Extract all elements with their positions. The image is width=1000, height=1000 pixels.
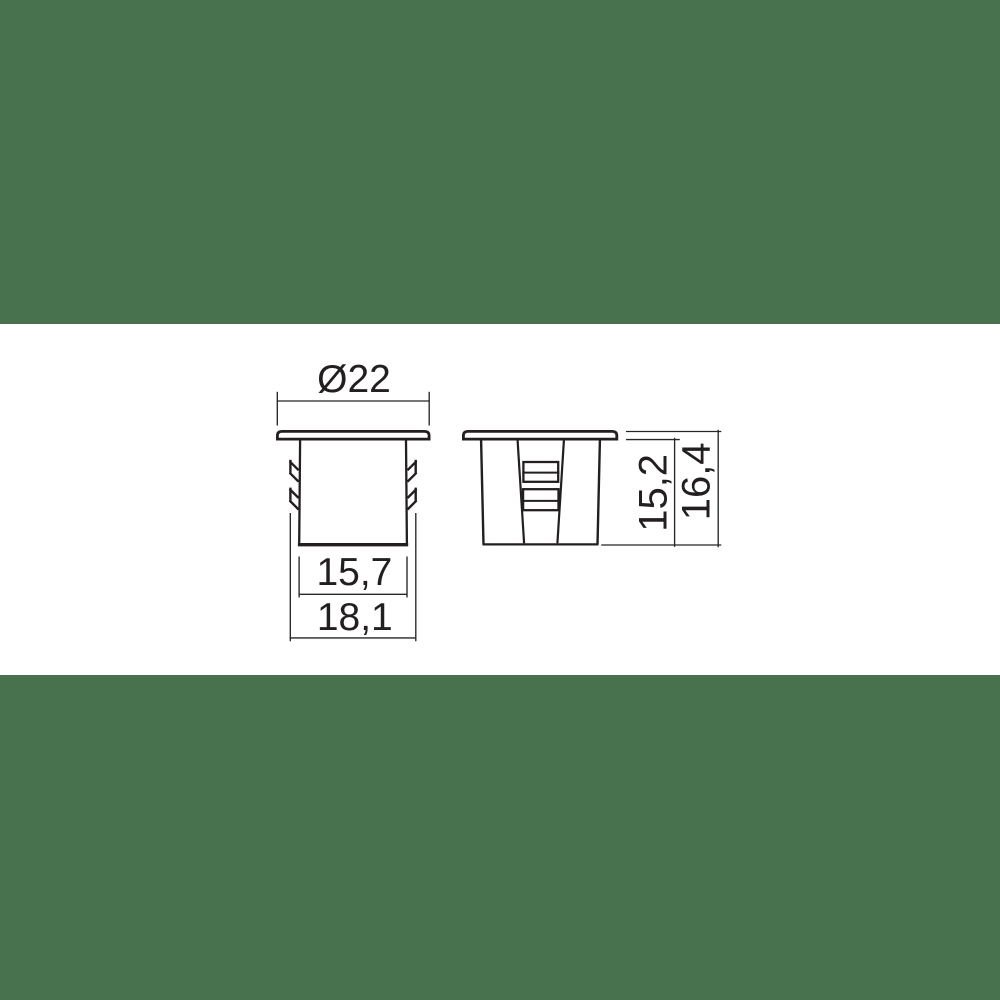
svg-text:18,1: 18,1	[317, 596, 393, 639]
svg-text:15,2: 15,2	[632, 454, 676, 532]
svg-text:15,7: 15,7	[316, 551, 392, 594]
svg-text:16,4: 16,4	[675, 442, 719, 520]
svg-text:Ø22: Ø22	[317, 358, 391, 401]
